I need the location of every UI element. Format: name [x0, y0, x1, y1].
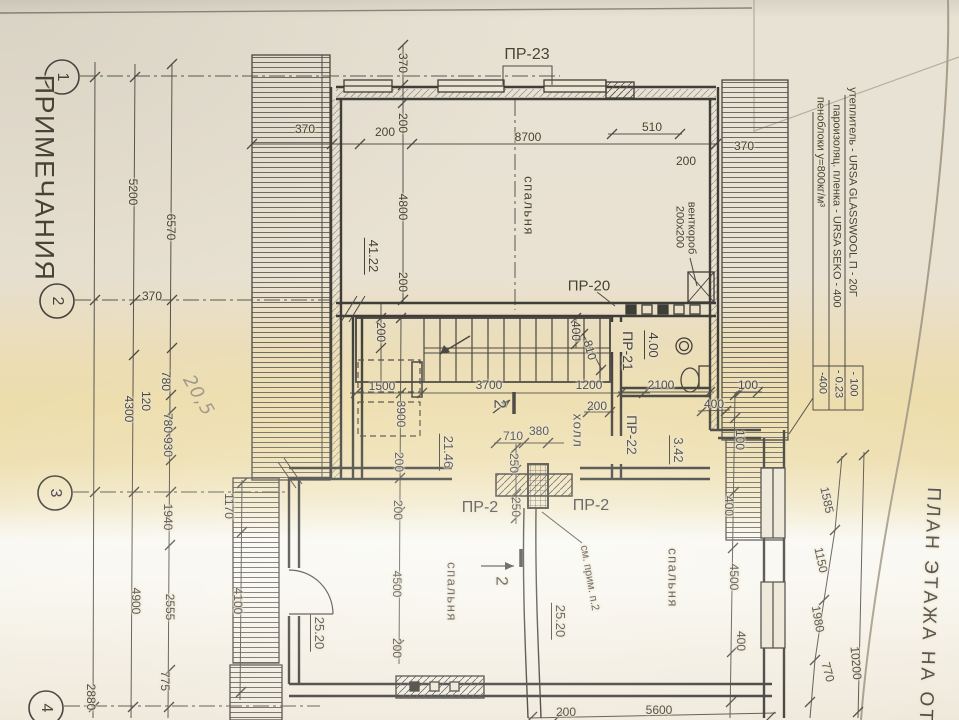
area-wc: 3.42: [669, 435, 685, 464]
axis-bubble-1: 1: [54, 73, 70, 82]
material-note-line-3: пеноблоки у=800кг/м³: [815, 97, 826, 207]
vent-duct-label: венткороб: [686, 202, 697, 255]
dim-370-right: 370: [734, 140, 754, 152]
dim-6570: 6570: [165, 214, 177, 241]
dim-100a: 100: [738, 379, 758, 391]
dim-4100: 4100: [232, 588, 244, 615]
dim-775: 775: [159, 671, 171, 691]
dim-4800: 4800: [397, 194, 409, 221]
room-hall: холл: [572, 414, 585, 448]
dim-200-hall: 200: [587, 400, 607, 412]
dim-370-left-top: 370: [295, 123, 315, 135]
dim-1500: 1500: [369, 380, 396, 392]
notes-heading: ПРИМЕЧАНИЯ: [31, 75, 58, 282]
dim-2100: 2100: [648, 379, 675, 391]
lintel-pr22: ПР-22: [625, 415, 639, 455]
dim-120: 120: [140, 391, 152, 411]
area-bathroom: 4.00: [644, 330, 660, 359]
room-bedroom-left: спальня: [446, 562, 459, 622]
area-bedroom-left: 25.20: [310, 615, 326, 652]
dim-1585: 1585: [818, 486, 835, 515]
section-mark-2-bottom: 2: [494, 576, 511, 585]
material-note-value-3: -400: [817, 372, 828, 394]
axis-bubble-3: 3: [47, 489, 63, 498]
section-mark-2-top: 2: [492, 399, 509, 408]
see-note-ref: см. прим. п.2: [578, 544, 600, 611]
area-bedroom-right: 25.20: [551, 603, 567, 640]
vent-duct-size: 200x200: [674, 206, 685, 248]
material-note-line-2: пароизоляц. пленка - URSA SEKO - 400: [831, 104, 842, 307]
dim-200-bottom: 200: [556, 706, 576, 718]
dim-510: 510: [642, 121, 662, 133]
dim-770: 770: [820, 661, 837, 683]
dim-930: 930: [162, 437, 174, 457]
lintel-pr20: ПР-20: [568, 279, 610, 294]
lintel-pr2-right: ПР-2: [573, 498, 609, 514]
dim-710: 710: [503, 430, 523, 442]
dim-1200: 1200: [576, 379, 603, 391]
dim-200-top-b: 200: [676, 155, 696, 167]
plan-title: ПЛАН ЭТАЖА НА ОТМ: [915, 487, 943, 720]
dim-4500-left: 4500: [391, 571, 403, 598]
lintel-pr2-left: ПР-2: [462, 500, 498, 516]
dim-780a: 780: [160, 371, 172, 391]
dim-200-chain-d: 200: [393, 452, 405, 472]
dim-10200: 10200: [849, 646, 864, 680]
area-hall: 21.46: [439, 434, 455, 471]
lintel-pr21: ПР-21: [621, 331, 635, 371]
dim-370-chain: 370: [397, 53, 409, 73]
drawing-text-layer: ПРИМЕЧАНИЯПЛАН ЭТАЖА НА ОТМ1234утеплител…: [0, 0, 959, 720]
dim-1150: 1150: [812, 546, 829, 574]
dim-1980: 1980: [810, 605, 826, 633]
lintel-pr23: ПР-23: [504, 47, 549, 63]
dim-2880: 2880: [85, 684, 97, 711]
dim-4900: 4900: [130, 588, 142, 615]
dim-8700: 8700: [515, 131, 542, 143]
dim-370-left-mid: 370: [142, 290, 162, 302]
dim-100b: 100: [734, 430, 746, 450]
dim-380: 380: [529, 425, 549, 437]
material-note-value-2: - 0.23: [833, 370, 844, 398]
dim-200-chain-c: 200: [375, 322, 387, 342]
dim-200-top-a: 200: [375, 126, 395, 138]
dim-200-chain-b: 200: [397, 272, 409, 292]
dim-200-chain-a: 200: [397, 113, 409, 133]
handwritten-note: 20,5: [179, 372, 217, 419]
dim-400a: 400: [704, 398, 724, 410]
axis-bubble-4: 4: [38, 704, 54, 713]
dim-3700: 3700: [476, 379, 503, 391]
dim-2555: 2555: [164, 594, 176, 621]
dim-4300: 4300: [123, 396, 135, 423]
dim-250b: 250: [510, 497, 522, 517]
dim-780b: 780: [162, 413, 174, 433]
dim-250a: 250: [508, 453, 520, 473]
dim-200-chain-f: 200: [391, 638, 403, 658]
dim-810: 810: [582, 339, 599, 361]
dim-1940: 1940: [162, 504, 174, 531]
dim-400b: 400: [570, 321, 582, 341]
room-bedroom-top: спальня: [523, 176, 536, 236]
axis-bubble-2: 2: [49, 297, 65, 306]
room-bedroom-right: спальня: [667, 548, 680, 608]
dim-5600: 5600: [646, 704, 673, 716]
dim-200-chain-e: 200: [392, 500, 404, 520]
floor-plan-photo: ПРИМЕЧАНИЯПЛАН ЭТАЖА НА ОТМ1234утеплител…: [0, 0, 959, 720]
area-bedroom-top: 41.22: [364, 238, 380, 275]
material-note-value-1: - 100: [848, 371, 859, 396]
dim-400d: 400: [735, 631, 747, 651]
dim-400c: 400: [723, 496, 735, 516]
material-note-line-1: утеплитель - URSA GLASSWOOL П - 20Г: [847, 87, 858, 296]
dim-1170: 1170: [223, 493, 235, 519]
dim-4500-right: 4500: [728, 564, 740, 591]
dim-5200: 5200: [127, 179, 139, 206]
dim-3900: 3900: [395, 401, 407, 428]
